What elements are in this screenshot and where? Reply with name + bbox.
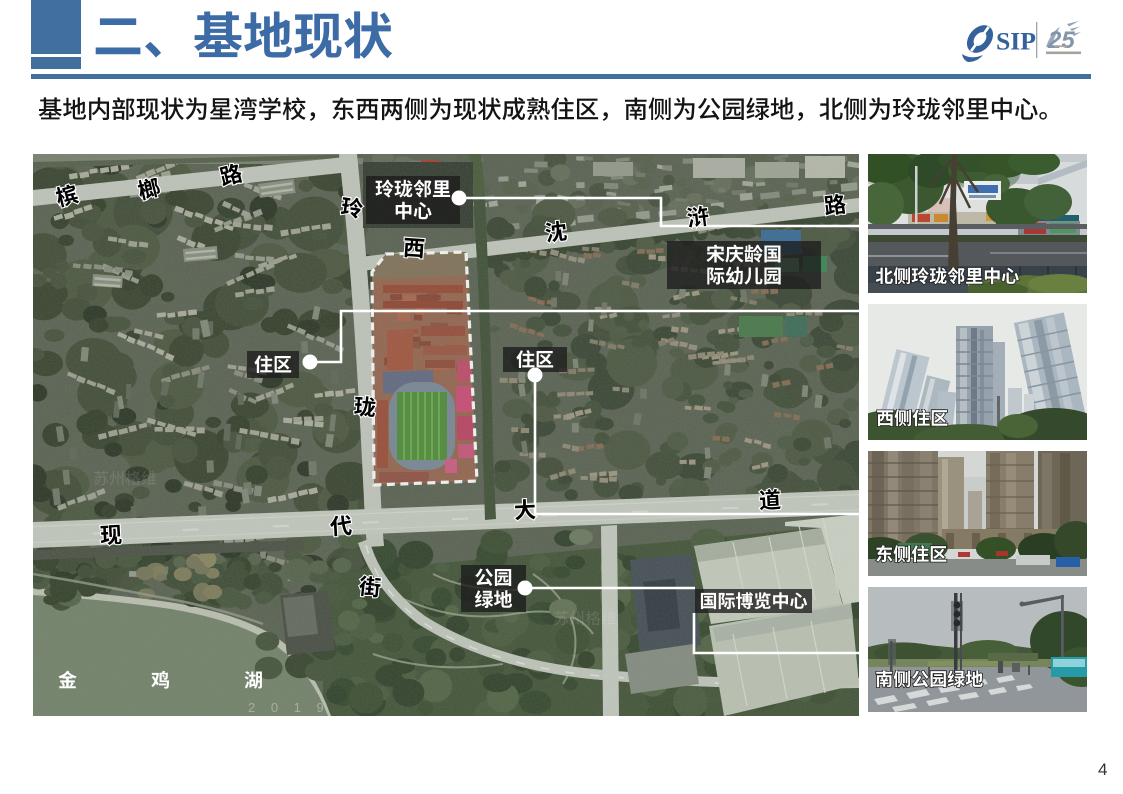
svg-text:2 0 1 9: 2 0 1 9 — [248, 700, 330, 715]
svg-text:25: 25 — [1047, 27, 1075, 54]
svg-text:SIP: SIP — [996, 29, 1036, 56]
